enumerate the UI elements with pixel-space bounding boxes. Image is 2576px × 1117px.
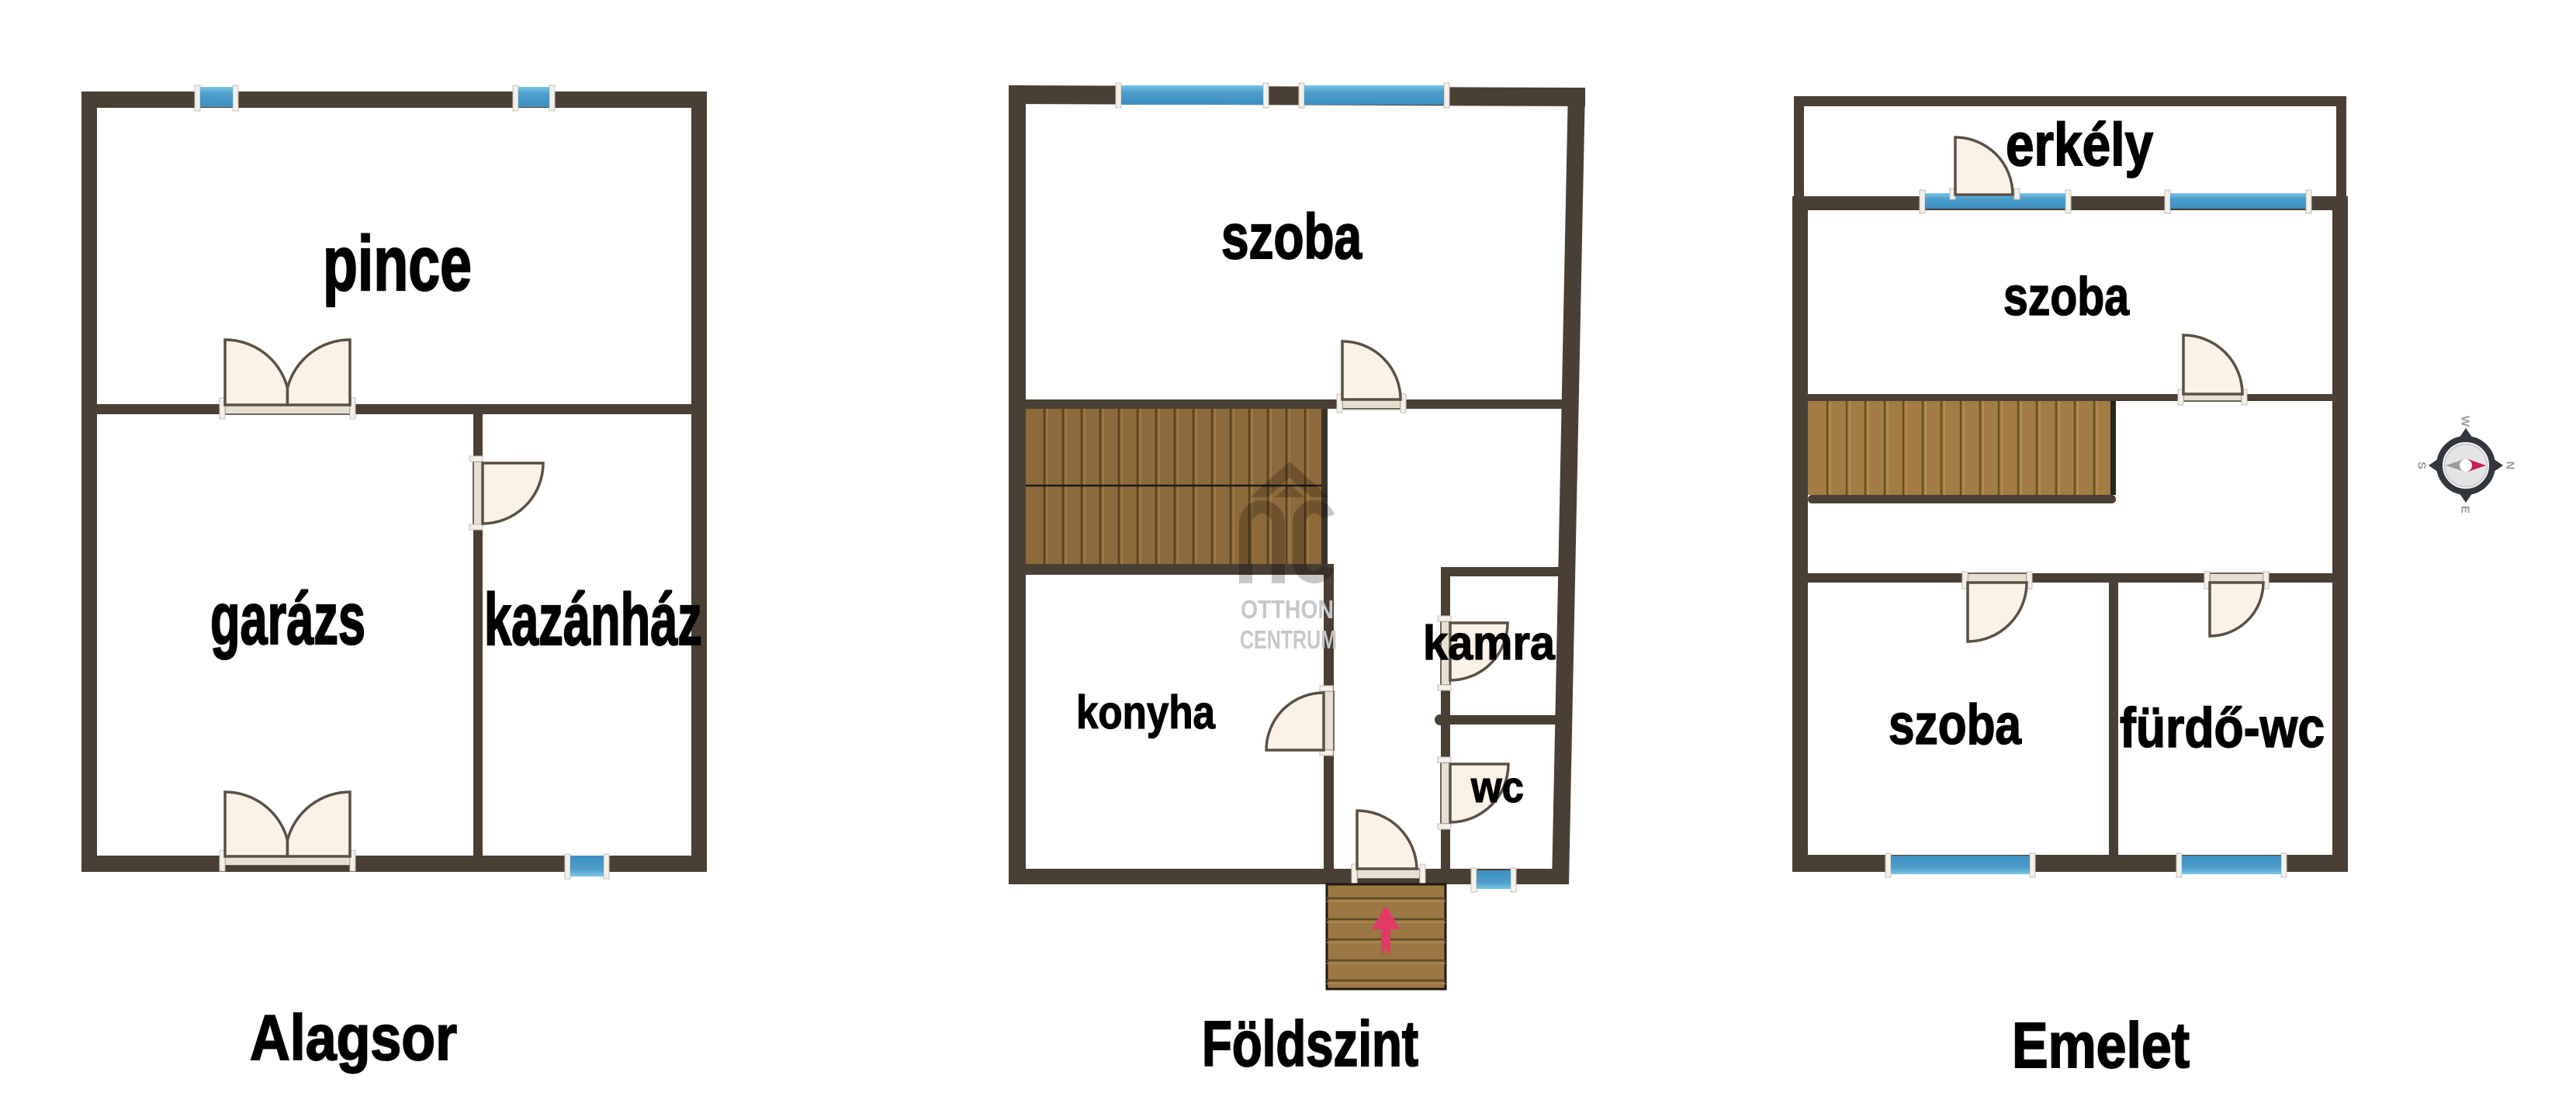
svg-text:Emelet: Emelet — [2012, 1009, 2190, 1081]
svg-text:Földszint: Földszint — [1202, 1008, 1418, 1080]
svg-text:E: E — [2459, 506, 2472, 514]
svg-text:szoba: szoba — [2003, 266, 2130, 327]
svg-text:W: W — [2459, 416, 2472, 427]
svg-text:garázs: garázs — [210, 578, 365, 660]
svg-text:OTTHON: OTTHON — [1241, 595, 1334, 624]
svg-text:wc: wc — [1470, 763, 1524, 812]
svg-text:konyha: konyha — [1076, 686, 1216, 738]
svg-text:erkély: erkély — [2006, 110, 2153, 178]
svg-text:Alagsor: Alagsor — [250, 1001, 457, 1074]
svg-text:szoba: szoba — [1889, 693, 2022, 756]
svg-text:pince: pince — [323, 220, 472, 307]
svg-text:CENTRUM: CENTRUM — [1240, 625, 1337, 654]
svg-text:kamra: kamra — [1423, 617, 1555, 670]
svg-text:kazánház: kazánház — [484, 579, 702, 661]
svg-text:szoba: szoba — [1221, 202, 1362, 272]
svg-text:fürdő-wc: fürdő-wc — [2120, 697, 2325, 759]
svg-text:N: N — [2504, 462, 2517, 470]
svg-text:S: S — [2415, 462, 2429, 469]
